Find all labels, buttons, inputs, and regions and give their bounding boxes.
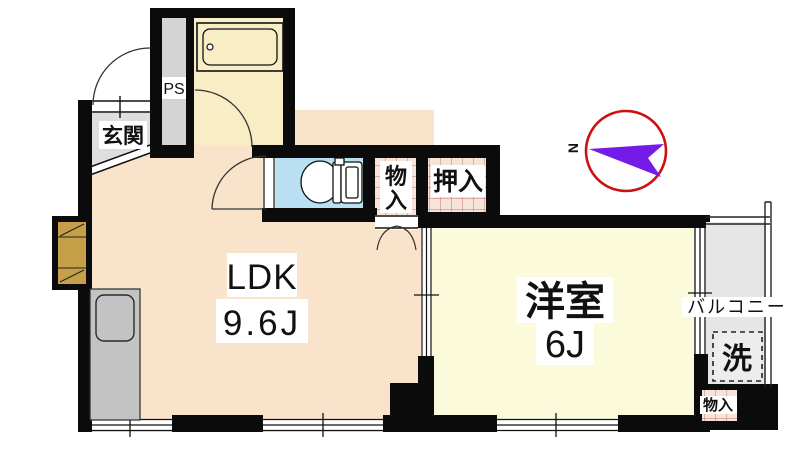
- wall: [150, 145, 194, 158]
- front-door-arc: [93, 48, 150, 105]
- wall: [428, 212, 500, 228]
- wall: [262, 208, 377, 222]
- kitchen-counter: [90, 289, 140, 420]
- washer-box: 洗: [713, 332, 762, 381]
- floor-plan-drawing: 洗 物入 バルコニー N PS 玄関 物 入 押入 LDK 9.6J 洋室: [0, 0, 800, 455]
- ldk-label: LDK: [226, 258, 297, 297]
- floor-plan-canvas: 洗 物入 バルコニー N PS 玄関 物 入 押入 LDK 9.6J 洋室: [0, 0, 800, 455]
- wall: [186, 18, 194, 148]
- wall: [283, 8, 295, 158]
- western-room-size: 6J: [545, 324, 585, 366]
- shoe-cabinet: [52, 216, 92, 290]
- north-arrow: [589, 144, 664, 177]
- storage-corner: 物入: [700, 390, 737, 421]
- toilet-fixture: [301, 158, 362, 203]
- balcony-area: 洗 物入 バルコニー: [682, 202, 792, 430]
- wall: [150, 8, 162, 158]
- entrance-area: [90, 48, 150, 175]
- drain: [207, 44, 213, 50]
- washer-label: 洗: [722, 343, 752, 376]
- closet-label: 押入: [433, 168, 483, 196]
- toilet-doorway: [263, 158, 275, 208]
- storage-center-label-top: 物: [385, 164, 407, 189]
- wall: [500, 215, 710, 228]
- ldk-size: 9.6J: [223, 304, 301, 343]
- wall: [172, 415, 263, 432]
- western-room-label: 洋室: [525, 280, 605, 324]
- compass: N: [565, 111, 666, 191]
- wall: [694, 354, 708, 386]
- storage-center-label-bottom: 入: [385, 188, 407, 213]
- shoe-cabinet-body: [58, 222, 86, 284]
- north-label: N: [565, 143, 581, 153]
- wall: [150, 8, 295, 18]
- storage-corner-label: 物入: [703, 396, 733, 414]
- ps-label: PS: [163, 81, 184, 98]
- balcony-label: バルコニー: [687, 297, 787, 317]
- wall: [383, 415, 497, 432]
- entrance-label: 玄関: [102, 124, 144, 148]
- wall: [252, 145, 500, 158]
- bathroom-floor: [194, 18, 283, 145]
